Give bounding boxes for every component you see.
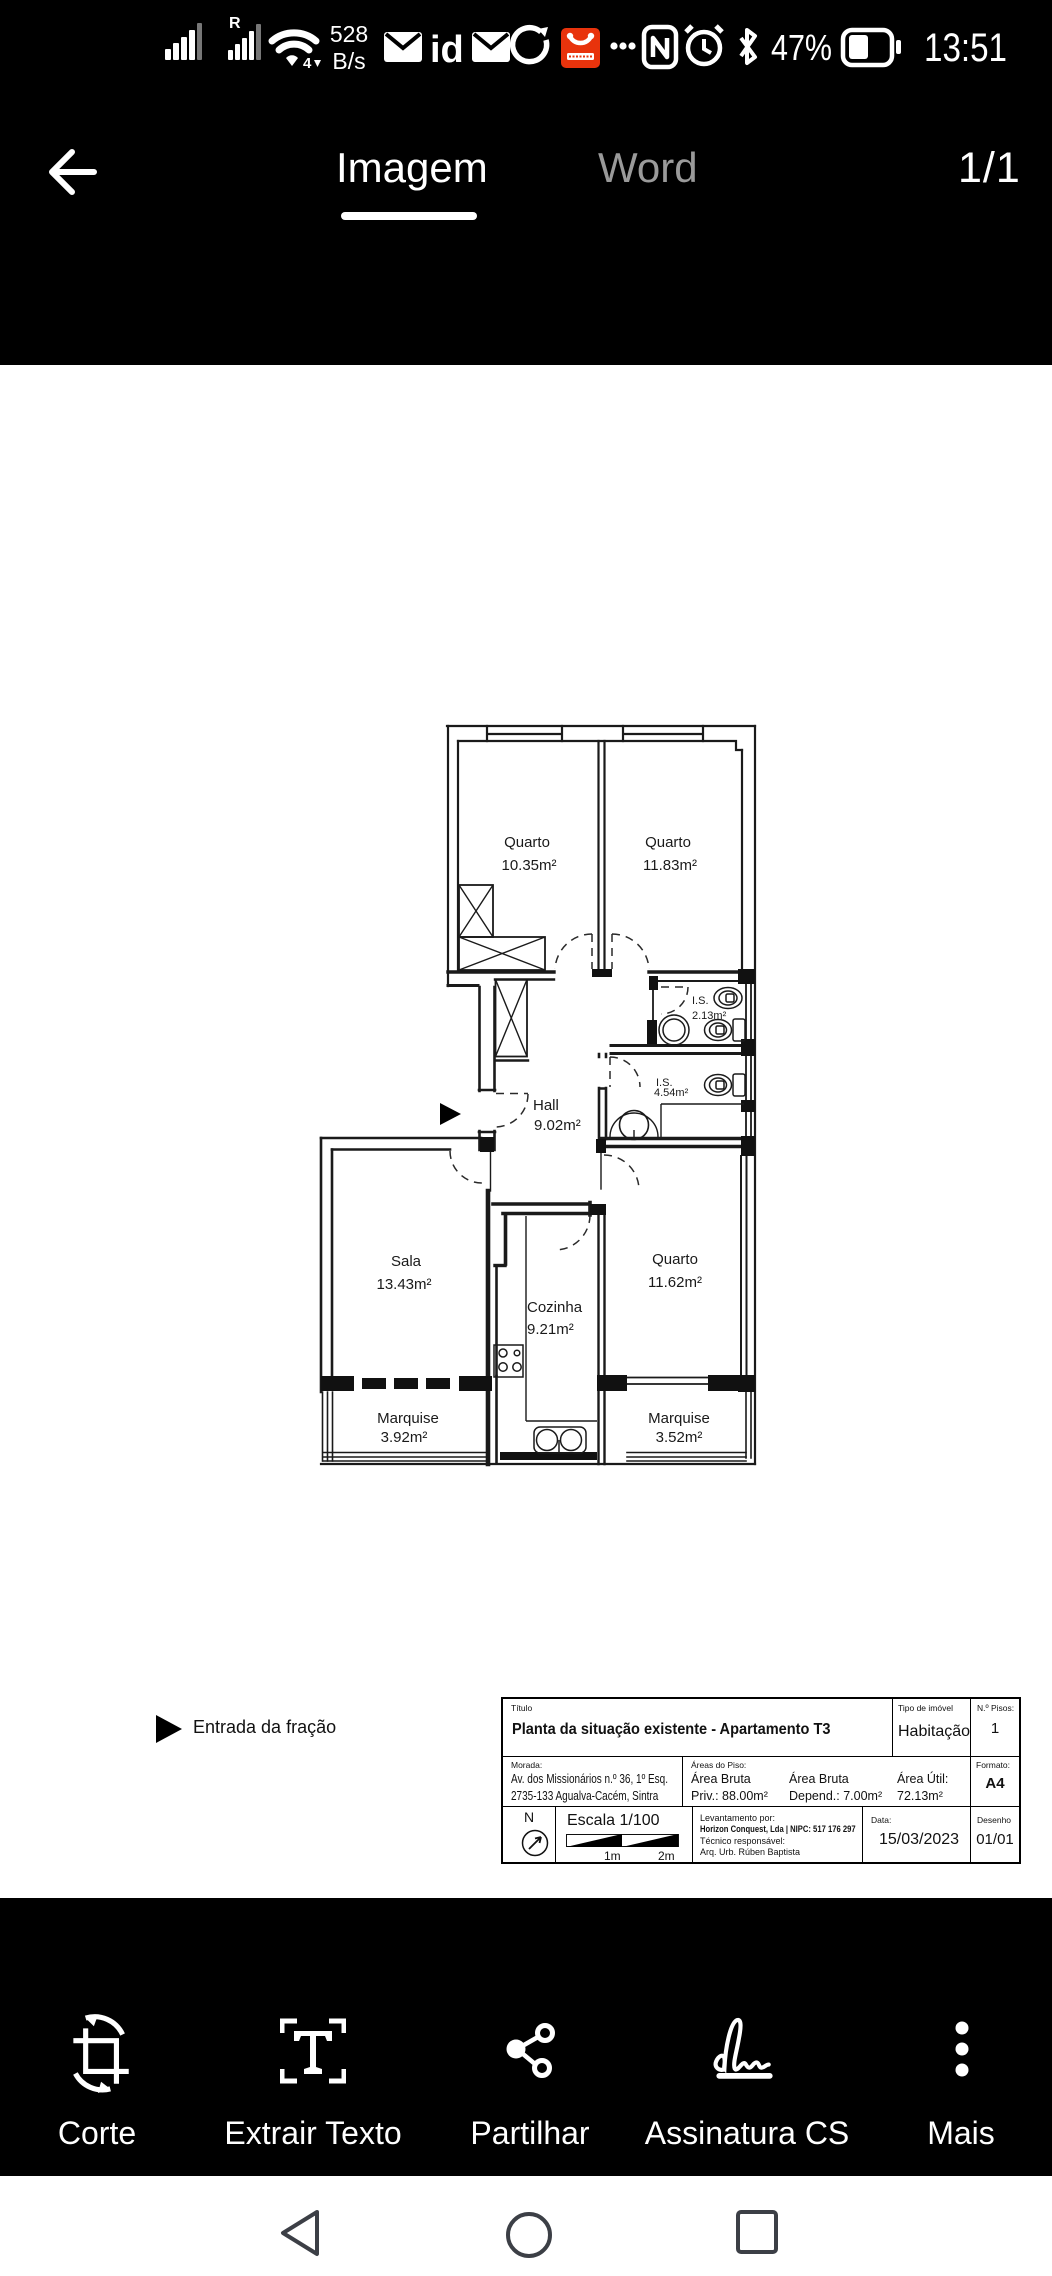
svg-text:Hall: Hall — [533, 1097, 559, 1114]
svg-text:4.54m²: 4.54m² — [654, 1087, 689, 1099]
svg-text:Sala: Sala — [391, 1253, 422, 1270]
svg-text:9.02m²: 9.02m² — [534, 1117, 581, 1134]
svg-text:R: R — [229, 15, 241, 32]
svg-text:11.62m²: 11.62m² — [648, 1274, 702, 1291]
svg-text:Marquise: Marquise — [377, 1410, 439, 1427]
svg-text:47%: 47% — [771, 27, 832, 68]
svg-text:10.35m²: 10.35m² — [501, 857, 556, 874]
svg-text:I.S.: I.S. — [692, 995, 709, 1007]
svg-text:9.21m²: 9.21m² — [527, 1321, 574, 1338]
svg-text:Marquise: Marquise — [648, 1410, 710, 1427]
svg-text:2.13m²: 2.13m² — [692, 1010, 727, 1022]
svg-text:Quarto: Quarto — [504, 834, 550, 851]
svg-text:Cozinha: Cozinha — [527, 1299, 583, 1316]
svg-text:528: 528 — [330, 21, 368, 47]
svg-text:4: 4 — [303, 55, 312, 72]
svg-text:Quarto: Quarto — [645, 834, 691, 851]
svg-text:3.92m²: 3.92m² — [381, 1429, 428, 1446]
svg-text:13.43m²: 13.43m² — [376, 1276, 431, 1293]
svg-text:B/s: B/s — [332, 48, 365, 74]
svg-text:11.83m²: 11.83m² — [643, 857, 697, 874]
svg-text:13:51: 13:51 — [924, 26, 1007, 70]
svg-text:Quarto: Quarto — [652, 1251, 698, 1268]
svg-text:3.52m²: 3.52m² — [656, 1429, 703, 1446]
svg-text:id: id — [430, 29, 464, 71]
